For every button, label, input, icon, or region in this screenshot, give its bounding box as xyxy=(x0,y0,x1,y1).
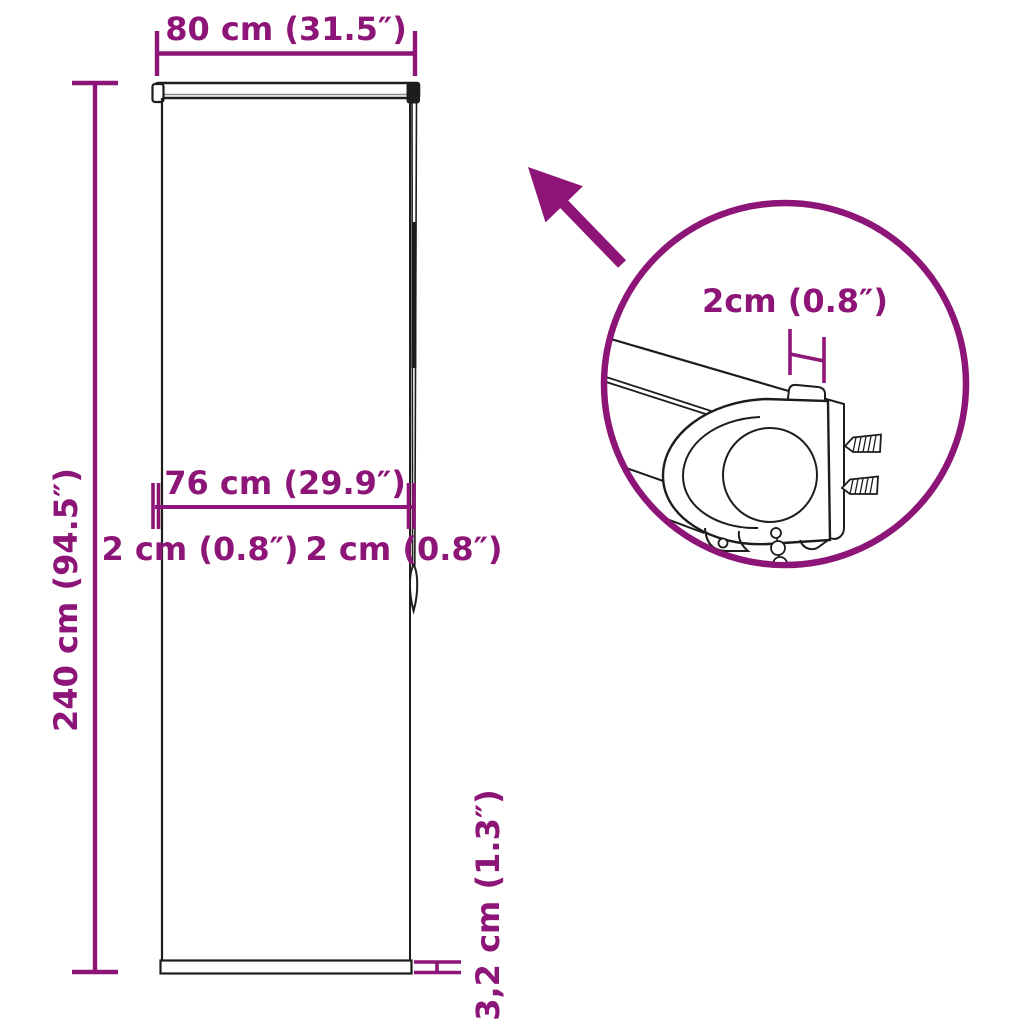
top-cassette-bar xyxy=(156,83,419,98)
fabric-width-label: 76 cm (29.9″) xyxy=(164,464,406,502)
bottom-hem-bar xyxy=(161,961,412,974)
total-height-label: 240 cm (94.5″) xyxy=(47,468,85,732)
chain-connector xyxy=(410,565,417,611)
diagram-stage: 80 cm (31.5″) 240 cm (94.5″) 76 cm (29.9… xyxy=(0,0,1024,1024)
dimension-total-height: 240 cm (94.5″) xyxy=(47,83,118,972)
roller-blind-dimension-diagram: 80 cm (31.5″) 240 cm (94.5″) 76 cm (29.9… xyxy=(0,0,1024,1024)
bracket-detail-view: 2cm (0.8″) xyxy=(598,203,966,571)
bottom-bar-label: 3,2 cm (1.3″) xyxy=(469,789,507,1021)
detail-pointer-arrow-icon xyxy=(528,167,626,268)
offset-left-label: 2 cm (0.8″) xyxy=(101,530,298,568)
offset-right-label: 2 cm (0.8″) xyxy=(305,530,502,568)
end-cap-hub xyxy=(723,428,817,522)
dimension-bottom-bar: 3,2 cm (1.3″) xyxy=(414,789,507,1021)
detail-gap-label: 2cm (0.8″) xyxy=(702,282,888,320)
cassette-right-end-cap xyxy=(407,83,421,104)
chain-guide-ball xyxy=(719,539,728,548)
dimension-total-width: 80 cm (31.5″) xyxy=(157,10,415,76)
total-width-label: 80 cm (31.5″) xyxy=(165,10,407,48)
blind-front-view xyxy=(153,83,421,974)
